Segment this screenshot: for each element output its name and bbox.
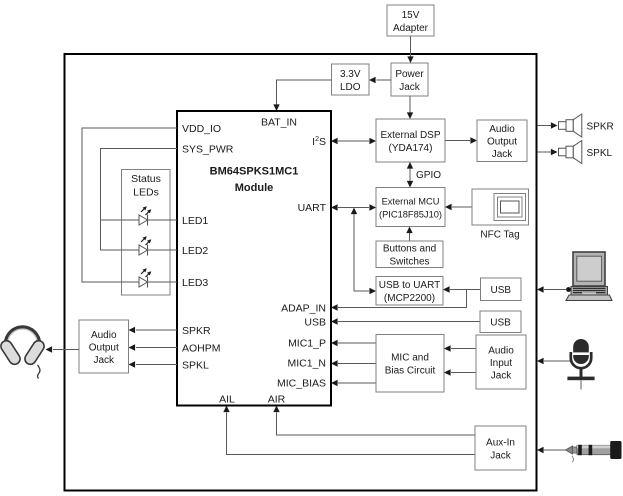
svg-text:BAT_IN: BAT_IN [261, 117, 297, 129]
svg-text:AIR: AIR [268, 394, 286, 406]
svg-text:BM64SPKS1MC1: BM64SPKS1MC1 [210, 166, 299, 178]
svg-text:(PIC18F85J10): (PIC18F85J10) [379, 209, 442, 219]
svg-text:I2S: I2S [312, 136, 326, 148]
svg-text:USB: USB [490, 285, 511, 296]
svg-text:Audio: Audio [91, 330, 117, 341]
svg-text:AIL: AIL [219, 394, 235, 406]
svg-text:Jack: Jack [399, 82, 421, 93]
svg-text:External DSP: External DSP [380, 130, 440, 141]
svg-text:Audio: Audio [488, 345, 514, 356]
svg-text:USB: USB [304, 317, 326, 329]
svg-text:USB to UART: USB to UART [379, 280, 441, 291]
svg-text:LEDs: LEDs [133, 187, 159, 199]
svg-text:Module: Module [235, 182, 274, 194]
svg-text:MIC1_P: MIC1_P [288, 338, 326, 350]
svg-text:MIC1_N: MIC1_N [287, 358, 326, 370]
svg-text:Jack: Jack [93, 355, 115, 366]
svg-text:Input: Input [490, 358, 512, 369]
svg-text:LDO: LDO [340, 82, 361, 93]
svg-text:Audio: Audio [489, 124, 515, 135]
svg-text:SPKL: SPKL [182, 360, 209, 372]
svg-text:ADAP_IN: ADAP_IN [281, 303, 326, 315]
svg-text:SPKR: SPKR [587, 122, 614, 133]
svg-text:SYS_PWR: SYS_PWR [182, 144, 234, 156]
svg-text:Jack: Jack [492, 149, 514, 160]
svg-text:GPIO: GPIO [416, 170, 441, 181]
svg-text:(YDA174): (YDA174) [389, 143, 433, 154]
svg-text:VDD_IO: VDD_IO [182, 123, 221, 135]
svg-text:(MCP2200): (MCP2200) [384, 293, 435, 304]
svg-text:15V: 15V [402, 10, 420, 21]
svg-text:AOHPM: AOHPM [182, 343, 221, 355]
svg-text:Switches: Switches [389, 257, 429, 268]
svg-text:Aux-In: Aux-In [486, 437, 515, 448]
svg-text:Power: Power [395, 69, 424, 80]
svg-text:Output: Output [89, 342, 119, 353]
svg-text:MIC_BIAS: MIC_BIAS [277, 378, 326, 390]
svg-text:Bias Circuit: Bias Circuit [385, 366, 436, 377]
svg-text:External MCU: External MCU [382, 196, 440, 206]
svg-text:Adapter: Adapter [393, 23, 429, 34]
svg-text:LED3: LED3 [182, 277, 208, 289]
svg-text:Jack: Jack [490, 450, 512, 461]
svg-text:LED1: LED1 [182, 215, 208, 227]
svg-text:MIC and: MIC and [391, 353, 429, 364]
svg-text:Output: Output [487, 137, 517, 148]
svg-text:LED2: LED2 [182, 245, 208, 257]
svg-text:Status: Status [131, 173, 161, 185]
svg-text:USB: USB [490, 318, 511, 329]
svg-text:Jack: Jack [491, 370, 513, 381]
svg-text:UART: UART [298, 202, 327, 214]
svg-text:Buttons and: Buttons and [383, 244, 436, 255]
svg-text:NFC Tag: NFC Tag [480, 230, 519, 241]
svg-text:3.3V: 3.3V [340, 69, 361, 80]
svg-text:SPKR: SPKR [182, 325, 211, 337]
svg-text:SPKL: SPKL [587, 148, 613, 159]
